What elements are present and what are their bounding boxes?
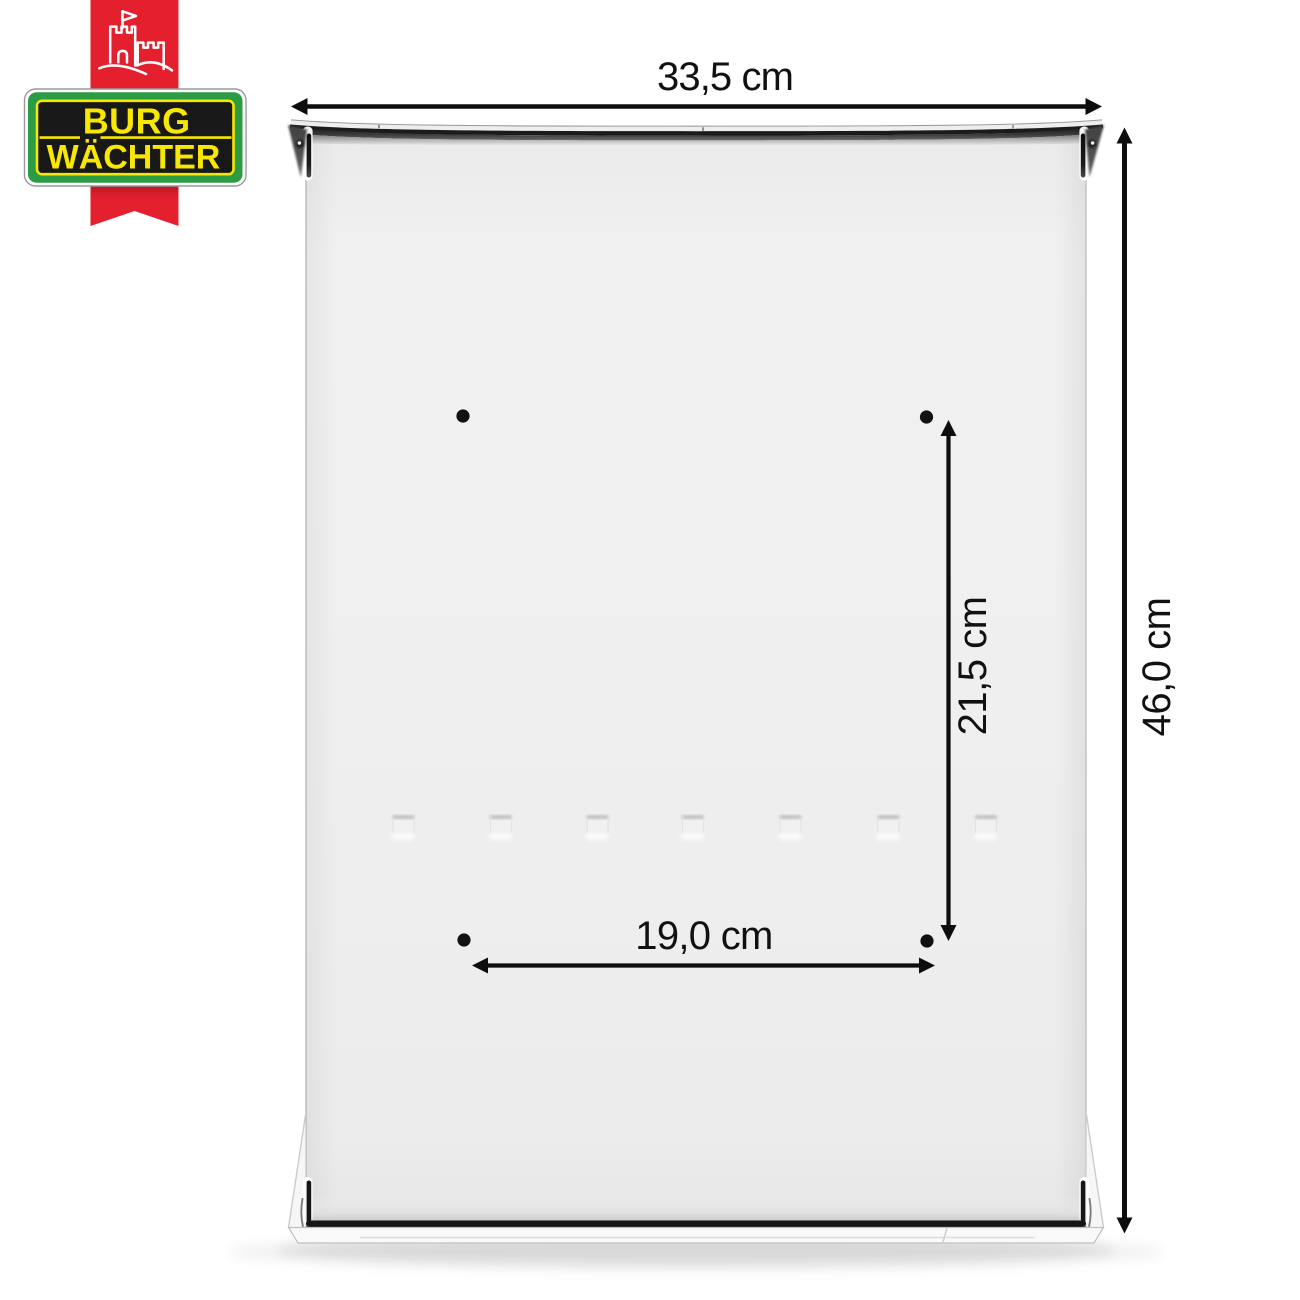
svg-text:19,0 cm: 19,0 cm <box>635 914 772 958</box>
svg-text:33,5 cm: 33,5 cm <box>657 55 793 99</box>
svg-text:BURG: BURG <box>83 101 191 142</box>
svg-text:WÄCHTER: WÄCHTER <box>47 139 221 177</box>
svg-text:46,0 cm: 46,0 cm <box>1135 598 1179 737</box>
svg-text:21,5 cm: 21,5 cm <box>951 597 995 736</box>
